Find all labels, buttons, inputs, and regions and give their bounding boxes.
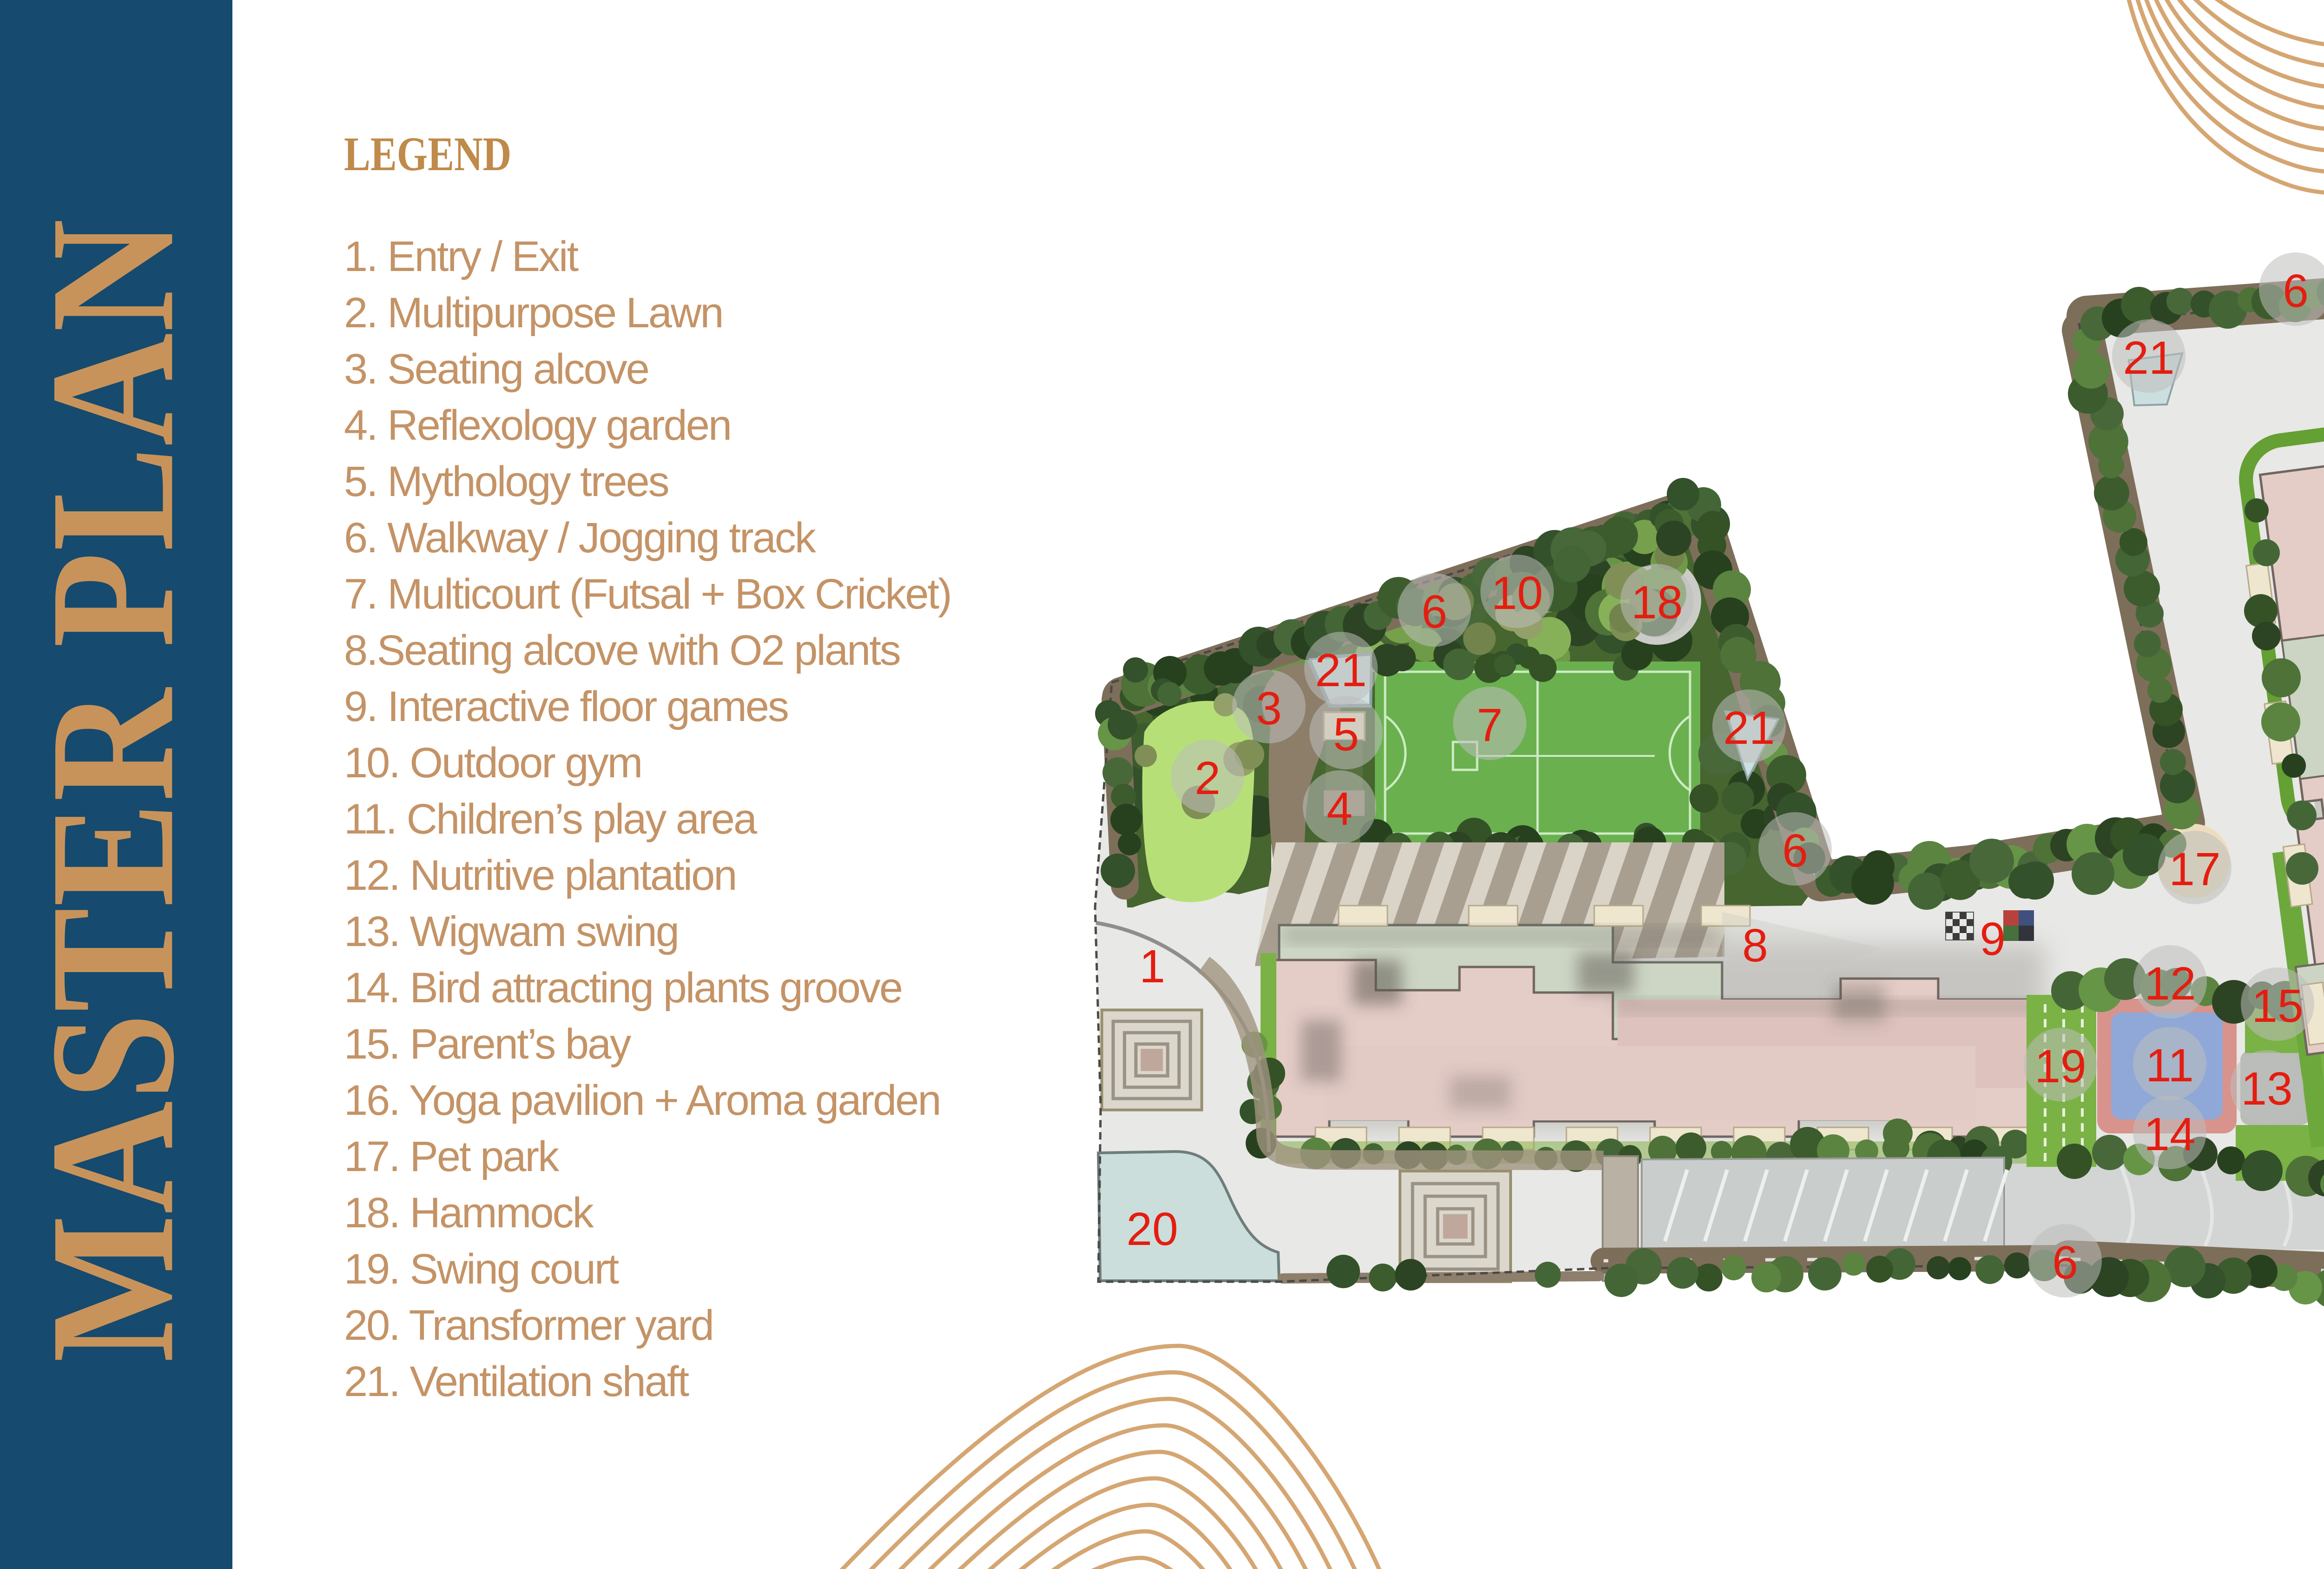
svg-text:7: 7: [1477, 699, 1503, 751]
svg-text:20: 20: [1126, 1203, 1178, 1255]
svg-text:4: 4: [1327, 783, 1353, 835]
svg-text:15: 15: [2251, 980, 2303, 1032]
svg-text:14: 14: [2144, 1108, 2195, 1160]
svg-text:2: 2: [1195, 752, 1221, 804]
svg-text:5: 5: [1333, 708, 1359, 761]
svg-text:21: 21: [1315, 644, 1367, 696]
svg-text:8: 8: [1742, 920, 1768, 972]
svg-text:21: 21: [2123, 332, 2174, 384]
svg-text:18: 18: [1631, 576, 1683, 629]
svg-text:3: 3: [1256, 682, 1282, 735]
svg-text:9: 9: [1980, 913, 2006, 965]
svg-text:21: 21: [1723, 702, 1775, 754]
svg-text:6: 6: [2283, 265, 2309, 317]
svg-text:12: 12: [2144, 958, 2196, 1010]
svg-text:10: 10: [1491, 567, 1543, 619]
svg-text:11: 11: [2146, 1039, 2194, 1092]
svg-text:1: 1: [1139, 940, 1165, 993]
svg-text:13: 13: [2241, 1063, 2292, 1115]
svg-text:6: 6: [1782, 825, 1808, 877]
svg-text:19: 19: [2034, 1040, 2086, 1092]
svg-text:17: 17: [2169, 843, 2220, 895]
svg-text:6: 6: [2052, 1237, 2078, 1289]
svg-text:6: 6: [1421, 586, 1447, 638]
